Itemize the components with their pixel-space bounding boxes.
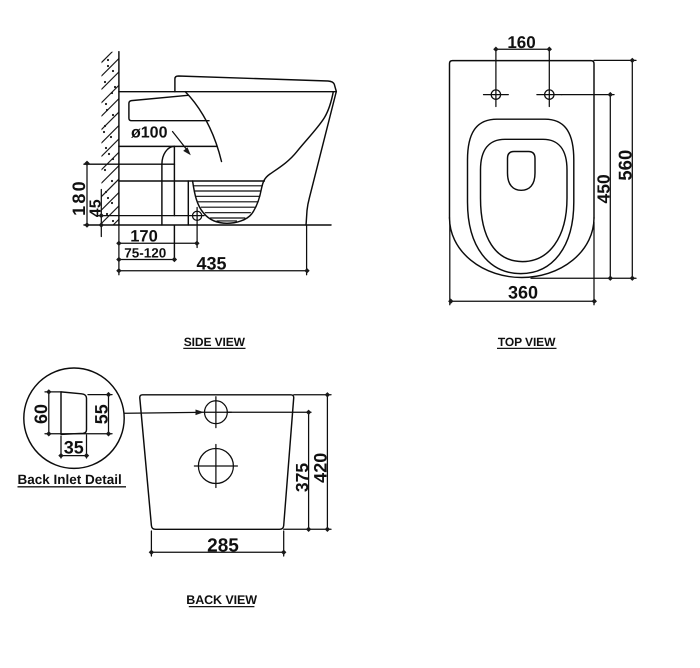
- svg-text:435: 435: [196, 254, 226, 274]
- svg-text:45: 45: [88, 199, 105, 217]
- svg-text:160: 160: [507, 33, 535, 52]
- svg-text:180: 180: [69, 179, 89, 216]
- svg-text:TOP VIEW: TOP VIEW: [498, 335, 556, 349]
- svg-text:55: 55: [91, 404, 111, 424]
- svg-text:420: 420: [310, 453, 330, 483]
- svg-text:60: 60: [31, 404, 51, 424]
- svg-text:285: 285: [207, 535, 239, 556]
- svg-text:Back Inlet Detail: Back Inlet Detail: [18, 472, 122, 487]
- svg-text:170: 170: [130, 227, 158, 245]
- svg-text:75-120: 75-120: [124, 246, 166, 261]
- svg-text:450: 450: [594, 174, 614, 203]
- svg-text:SIDE VIEW: SIDE VIEW: [184, 335, 246, 349]
- svg-text:ø100: ø100: [131, 125, 168, 142]
- svg-text:BACK VIEW: BACK VIEW: [186, 593, 257, 607]
- svg-text:375: 375: [292, 463, 312, 492]
- svg-text:360: 360: [508, 282, 538, 302]
- svg-text:560: 560: [615, 150, 636, 181]
- svg-text:35: 35: [64, 438, 84, 458]
